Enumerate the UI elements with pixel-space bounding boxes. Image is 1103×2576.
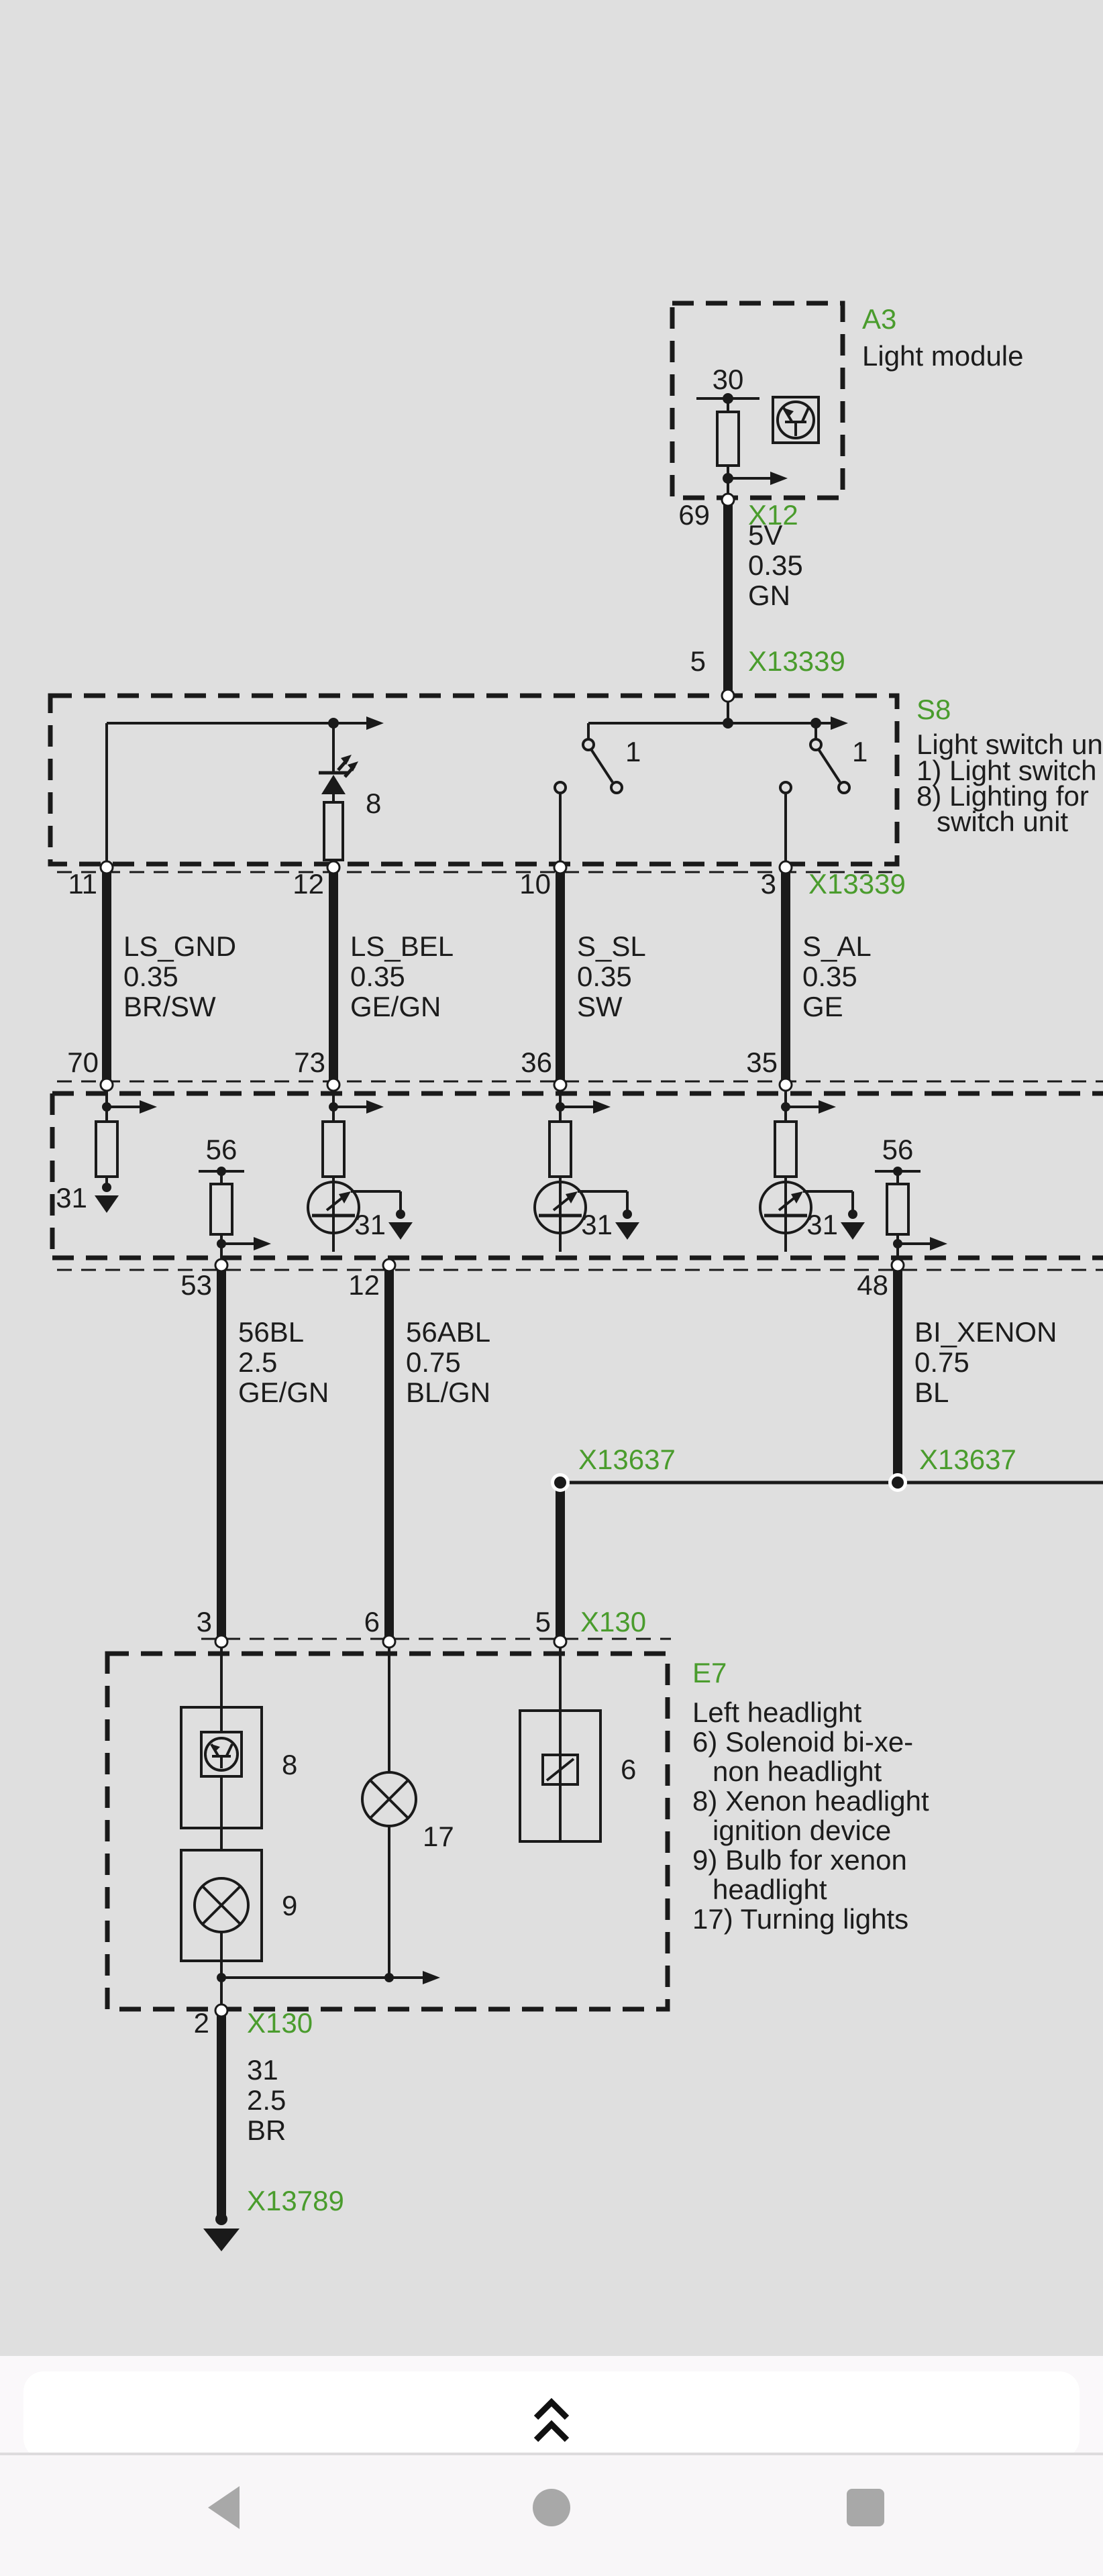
app-screen: A3 Light module 30 69 X12 5V 0.35 GN 5 X…	[0, 0, 1103, 2576]
wire-gauge: 0.35	[123, 961, 178, 992]
pin-70-label: 70	[67, 1046, 99, 1078]
pin-10-label: 10	[519, 868, 551, 900]
divider	[0, 2453, 1103, 2455]
e7-desc-6: 9) Bulb for xenon	[692, 1844, 907, 1876]
pin-2-label: 2	[194, 2007, 209, 2039]
module-code-s8: S8	[916, 694, 951, 725]
module-title-a3: Light module	[862, 340, 1024, 372]
pin-5-label: 5	[535, 1606, 551, 1638]
e7-desc-4: 8) Xenon headlight	[692, 1785, 929, 1817]
wiring-diagram: A3 Light module 30 69 X12 5V 0.35 GN 5 X…	[0, 0, 1103, 2576]
terminal-31-label: 31	[806, 1209, 838, 1240]
s8-desc-4: switch unit	[937, 806, 1068, 837]
wire-gauge: 2.5	[247, 2084, 286, 2116]
e7-desc-8: 17) Turning lights	[692, 1903, 908, 1935]
wire-color: GE/GN	[350, 991, 441, 1022]
wire-gauge: 0.35	[748, 549, 803, 581]
e7-desc-1: Left headlight	[692, 1697, 862, 1728]
connector-x13637-label: X13637	[578, 1444, 676, 1475]
wire-gauge: 2.5	[238, 1346, 277, 1378]
connector-x13789-label: X13789	[247, 2185, 344, 2216]
e7-turn-label: 17	[423, 1821, 454, 1852]
e7-bulb-label: 9	[282, 1890, 297, 1921]
s8-switch-label: 1	[625, 736, 641, 767]
wire-gauge: 0.75	[406, 1346, 461, 1378]
connector-x13339-label: X13339	[808, 868, 906, 900]
wire-name: BI_XENON	[914, 1316, 1057, 1348]
square-icon	[847, 2489, 884, 2526]
terminal-31-label: 31	[354, 1209, 386, 1240]
pin-12-label: 12	[293, 868, 324, 900]
s8-lamp-label: 8	[366, 788, 381, 819]
terminal-30-label: 30	[713, 364, 744, 395]
s8-switch-label: 1	[852, 736, 868, 767]
wire-name: 31	[247, 2054, 278, 2086]
wire-name: 5V	[748, 519, 782, 551]
nav-home-button[interactable]	[533, 2489, 570, 2526]
wire-gauge: 0.75	[914, 1346, 969, 1378]
connector-x130-label: X130	[247, 2007, 313, 2039]
wire-name: 56BL	[238, 1316, 304, 1348]
pin-69-label: 69	[678, 499, 710, 531]
terminal-56-label: 56	[882, 1134, 914, 1165]
circle-icon	[533, 2489, 570, 2526]
pin-3-label: 3	[197, 1606, 212, 1638]
connector-x13637-label: X13637	[919, 1444, 1016, 1475]
e7-desc-2: 6) Solenoid bi-xe-	[692, 1726, 913, 1758]
wire-name: LS_GND	[123, 930, 236, 962]
pin-5-label: 5	[690, 645, 706, 677]
pin-48-label: 48	[857, 1269, 888, 1301]
e7-solenoid-label: 6	[621, 1754, 636, 1785]
connector-x130-label: X130	[580, 1606, 646, 1638]
wire-gauge: 0.35	[577, 961, 632, 992]
wire-color: BL	[914, 1377, 949, 1408]
connector-x13339-label: X13339	[748, 645, 845, 677]
wire-name: LS_BEL	[350, 930, 454, 962]
wire-color: SW	[577, 991, 623, 1022]
diagram-background	[0, 0, 1103, 2576]
wire-color: GE/GN	[238, 1377, 329, 1408]
wire-color: BR	[247, 2114, 286, 2146]
e7-desc-3: non headlight	[713, 1756, 882, 1787]
wire-color: BR/SW	[123, 991, 216, 1022]
wire-color: GE	[802, 991, 843, 1022]
wire-color: BL/GN	[406, 1377, 490, 1408]
pin-53-label: 53	[180, 1269, 212, 1301]
wire-gauge: 0.35	[802, 961, 857, 992]
nav-recents-button[interactable]	[847, 2489, 884, 2526]
pin-3-label: 3	[761, 868, 776, 900]
terminal-56-label: 56	[206, 1134, 238, 1165]
module-code-a3: A3	[862, 303, 896, 335]
wire-gauge: 0.35	[350, 961, 405, 992]
pin-11-label: 11	[68, 868, 97, 900]
wire-name: S_AL	[802, 930, 872, 962]
pin-35-label: 35	[746, 1046, 778, 1078]
pin-12-label: 12	[348, 1269, 380, 1301]
pin-73-label: 73	[294, 1046, 325, 1078]
e7-desc-7: headlight	[713, 1874, 827, 1905]
e7-desc-5: ignition device	[713, 1815, 891, 1846]
terminal-31-label: 31	[581, 1209, 613, 1240]
terminal-31-label: 31	[56, 1182, 87, 1214]
wire-color: GN	[748, 580, 790, 611]
pin-6-label: 6	[364, 1606, 380, 1638]
module-code-e7: E7	[692, 1657, 727, 1688]
e7-igniter-label: 8	[282, 1749, 297, 1780]
wire-name: S_SL	[577, 930, 646, 962]
bottom-sheet-card[interactable]	[23, 2371, 1080, 2459]
wire-name: 56ABL	[406, 1316, 490, 1348]
pin-36-label: 36	[521, 1046, 552, 1078]
